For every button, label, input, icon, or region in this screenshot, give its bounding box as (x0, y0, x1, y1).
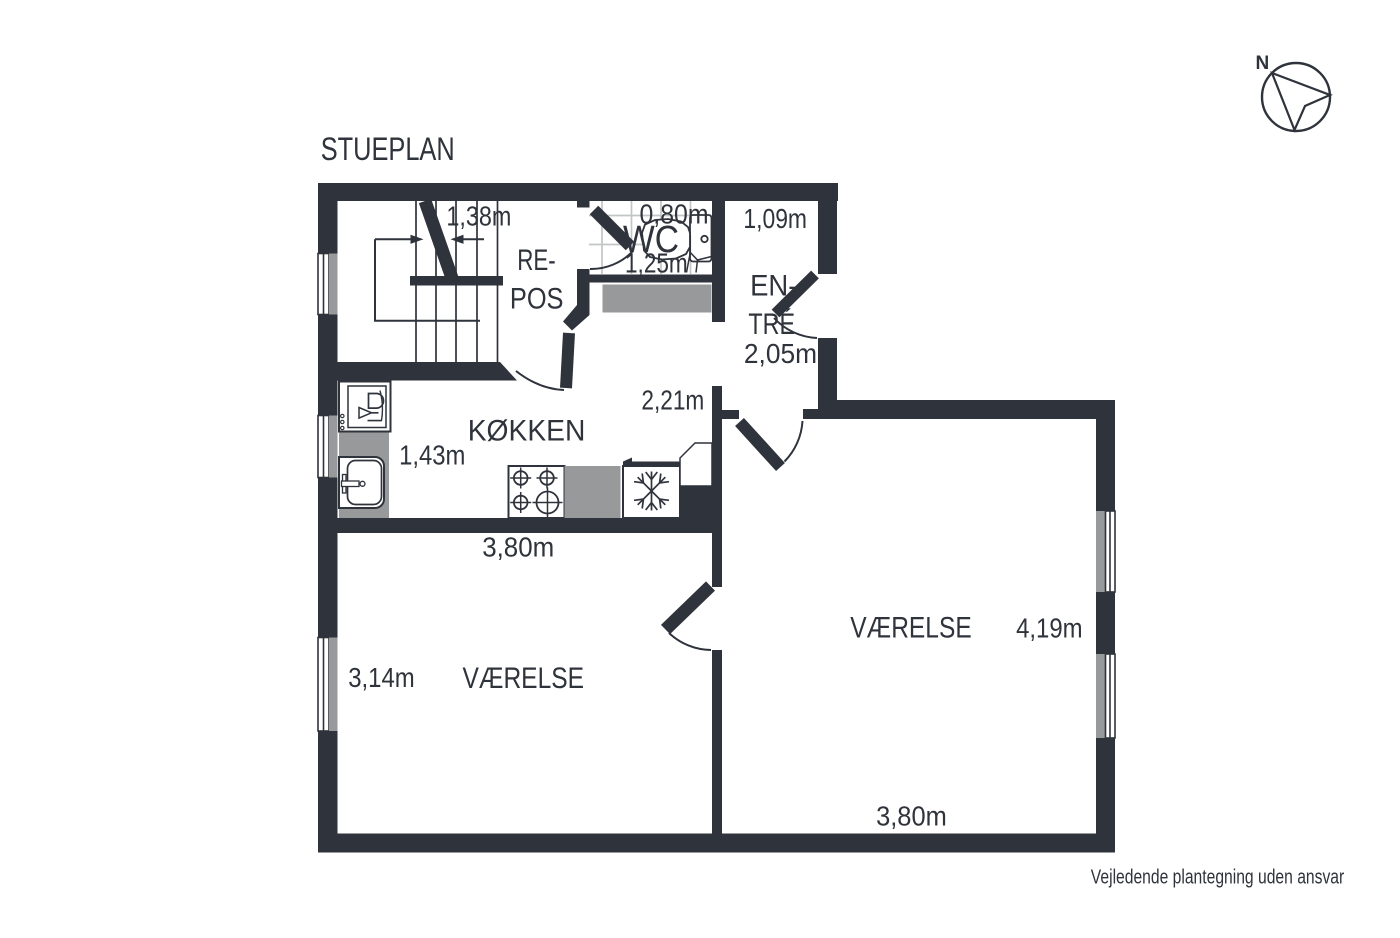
svg-text:TRÉ: TRÉ (748, 308, 795, 341)
svg-text:1,38m: 1,38m (446, 201, 511, 232)
svg-text:KØKKEN: KØKKEN (468, 415, 586, 448)
svg-text:RE-: RE- (517, 244, 556, 277)
svg-text:1,25m: 1,25m (625, 248, 688, 279)
svg-text:1,43m: 1,43m (399, 440, 465, 471)
svg-text:3,80m: 3,80m (482, 531, 554, 562)
svg-text:VÆRELSE: VÆRELSE (850, 612, 971, 645)
svg-text:2,21m: 2,21m (641, 385, 704, 416)
svg-text:EN-: EN- (750, 269, 797, 302)
svg-text:Vejledende plantegning uden an: Vejledende plantegning uden ansvar (1091, 867, 1345, 889)
svg-text:1,09m: 1,09m (743, 203, 807, 234)
svg-text:2,05m: 2,05m (744, 338, 817, 369)
svg-text:VÆRELSE: VÆRELSE (463, 662, 585, 695)
svg-text:POS: POS (510, 283, 564, 316)
svg-text:3,14m: 3,14m (348, 662, 415, 693)
svg-text:3,80m: 3,80m (876, 800, 947, 831)
svg-text:4,19m: 4,19m (1016, 613, 1083, 644)
svg-text:STUEPLAN: STUEPLAN (321, 131, 455, 167)
svg-text:N: N (1256, 53, 1270, 74)
